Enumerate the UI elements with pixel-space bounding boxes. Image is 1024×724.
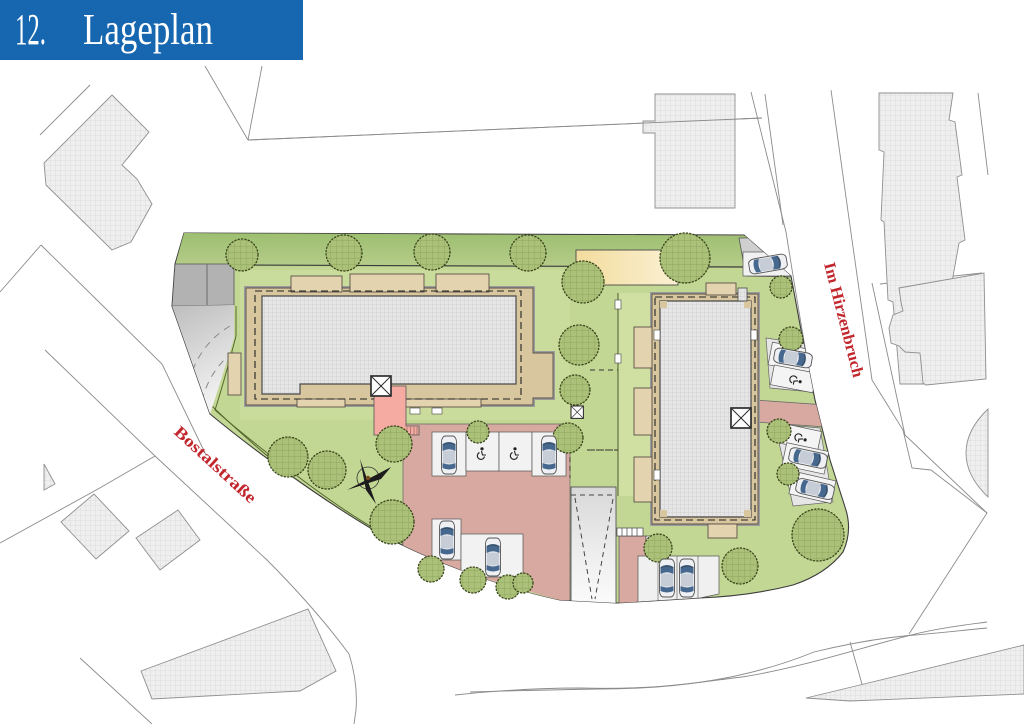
svg-text:Lageplan: Lageplan [83,5,213,54]
svg-text:12.: 12. [15,5,46,54]
svg-text:Im Hirzenbruch: Im Hirzenbruch [820,260,868,379]
